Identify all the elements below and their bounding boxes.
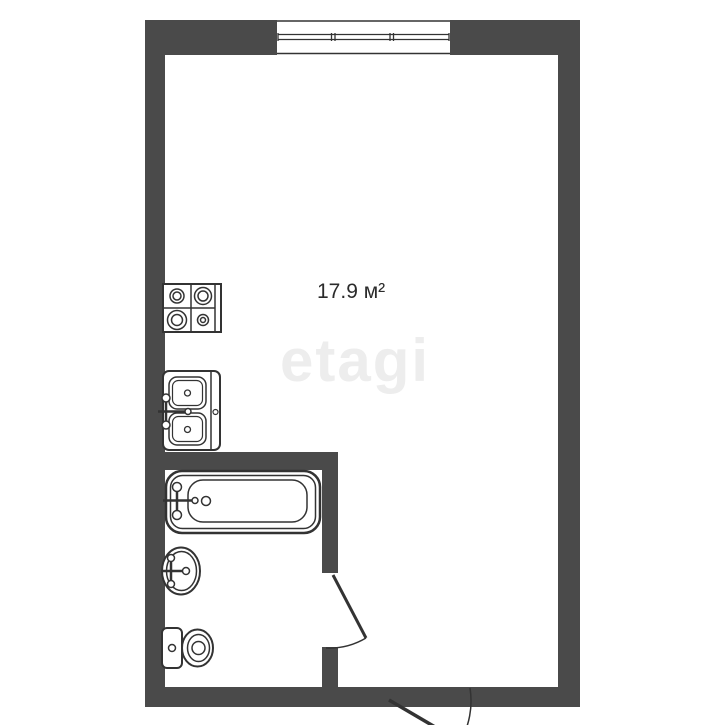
bathtub-faucet-knob (173, 511, 182, 520)
washbasin-faucet-knob (168, 555, 175, 562)
window-opening (277, 20, 450, 55)
wall-left (145, 20, 165, 707)
bathtub-faucet-knob (173, 483, 182, 492)
bathroom-wall-east-lower (322, 647, 338, 687)
watermark: etagi (280, 326, 430, 395)
window-icon (277, 20, 450, 55)
sink-faucet-tip (185, 409, 191, 415)
bathroom-wall-east-upper (322, 470, 338, 573)
washbasin-icon (162, 548, 200, 595)
kitchen-sink-icon (158, 371, 220, 450)
sink-faucet-knob (162, 394, 170, 402)
bathroom-door-arc (326, 638, 366, 648)
room-area-label: 17.9 м² (317, 280, 385, 304)
washbasin-faucet-tip (183, 568, 190, 575)
wall-right (558, 20, 580, 707)
wall-bottom (145, 687, 580, 707)
bathroom-wall-north (165, 452, 338, 470)
toilet-icon (162, 628, 213, 668)
bathtub-icon (163, 471, 320, 533)
bathroom-door-icon (326, 575, 366, 648)
sink-faucet-knob (162, 421, 170, 429)
stove-icon (163, 284, 221, 332)
floor-plan: etagi 17.9 м² (0, 0, 725, 725)
washbasin-faucet-knob (168, 581, 175, 588)
bathtub-faucet-tip (192, 498, 198, 504)
bathroom-door-leaf (333, 575, 366, 638)
toilet-tank (162, 628, 182, 668)
